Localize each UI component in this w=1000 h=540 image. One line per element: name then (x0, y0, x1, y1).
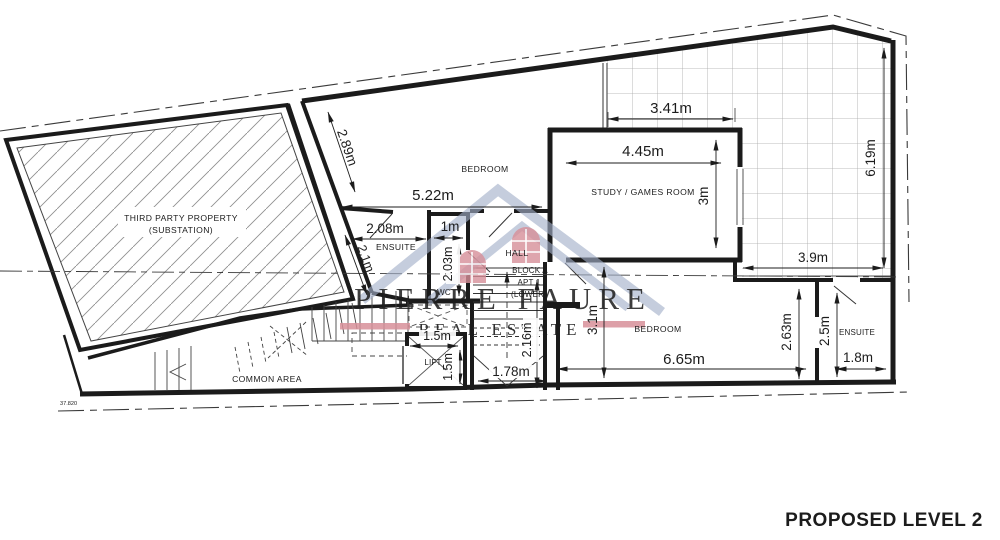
room-label-substation-1: THIRD PARTY PROPERTY (124, 213, 238, 223)
dim-study-width-label: 4.45m (622, 143, 664, 160)
dim-ensuite-right-width-label: 1.8m (843, 350, 873, 365)
room-label-bedroom-upper: BEDROOM (461, 164, 508, 174)
level-marker: 37.820 (60, 401, 77, 407)
dim-stair-depth-label: 2.16m (520, 323, 534, 358)
dim-bedroom-lower-width-label: 6.65m (663, 351, 705, 368)
dim-ensuite-right-depth-label: 2.5m (817, 316, 832, 346)
watermark-bar-left (340, 323, 410, 330)
dim-bedroom-lower-depth-label: 3.1m (585, 305, 600, 335)
watermark-name: PIERRE FAURE (354, 281, 652, 316)
hall-top-wall-1 (340, 208, 393, 212)
room-label-substation-2: (SUBSTATION) (149, 225, 213, 235)
stair-chevron (170, 364, 186, 380)
dim-lift-width-label: 1.5m (423, 329, 451, 343)
dim-bedroom-upper-width-label: 5.22m (412, 187, 454, 204)
room-label-study: STUDY / GAMES ROOM (591, 187, 695, 197)
dim-wc-width-label: 1m (441, 219, 460, 234)
room-label-block-3: (LOWER) (511, 290, 547, 299)
dim-lift-depth-label: 1.5m (441, 353, 455, 381)
dim-bedroom-lower-right-depth-label: 2.63m (779, 313, 794, 351)
room-label-common-area: COMMON AREA (232, 374, 302, 384)
dim-wc-depth-label: 2.03m (441, 247, 455, 282)
dim-terrace-top-width-label: 3.41m (650, 100, 692, 117)
room-label-block-2: APT 1 (517, 278, 540, 287)
room-label-ensuite-right: ENSUITE (839, 328, 875, 337)
room-label-bedroom-lower: BEDROOM (634, 324, 681, 334)
dim-stair-width-label: 1.78m (492, 364, 530, 379)
room-label-ensuite-left: ENSUITE (376, 242, 416, 252)
floor-plan-page: PIERRE FAURE REAL ESTATE (0, 0, 1000, 540)
dim-study-depth-label: 3m (696, 187, 711, 206)
bottom-wall (80, 382, 896, 394)
dim-bedroom-upper-depth-label: 2.89m (334, 127, 360, 167)
room-label-block-1: BLOCK A (512, 266, 548, 275)
dim-ensuite-left-width-label: 2.08m (366, 221, 404, 236)
dim-terrace-bottom-width-label: 3.9m (798, 250, 828, 265)
room-label-hall: HALL (505, 248, 528, 258)
room-label-wc: WC (437, 288, 451, 297)
dim-terrace-height-label: 6.19m (863, 139, 878, 177)
room-label-lift: LIFT (424, 358, 441, 367)
floor-plan-canvas: PIERRE FAURE REAL ESTATE (0, 0, 1000, 540)
drawing-title: PROPOSED LEVEL 2 (785, 510, 983, 531)
